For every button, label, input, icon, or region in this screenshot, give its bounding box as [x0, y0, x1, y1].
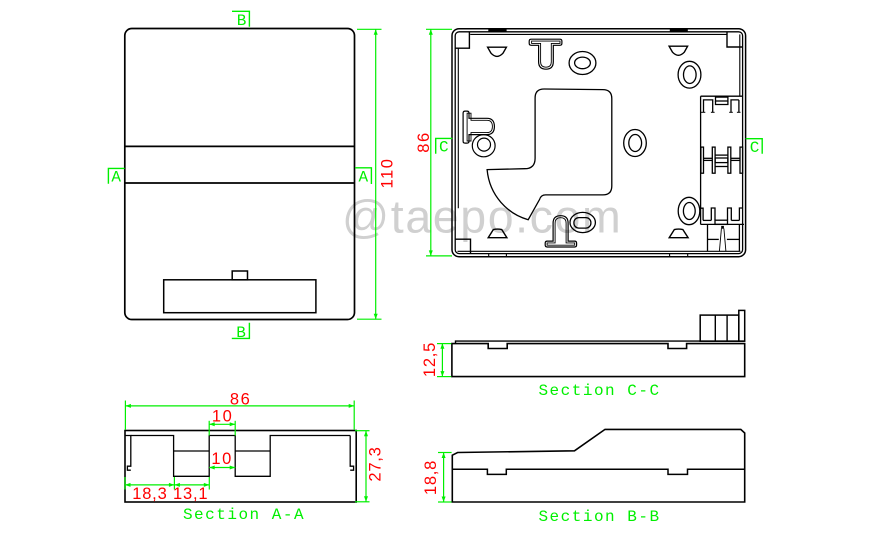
svg-text:C: C — [750, 139, 760, 157]
svg-text:C: C — [439, 139, 449, 157]
svg-text:Section A-A: Section A-A — [183, 506, 305, 524]
svg-text:13,1: 13,1 — [173, 485, 208, 503]
svg-text:10: 10 — [212, 407, 234, 425]
svg-text:27,3: 27,3 — [367, 446, 385, 481]
svg-text:Section B-B: Section B-B — [538, 508, 660, 526]
svg-text:A: A — [111, 168, 121, 186]
svg-text:@taepo.com: @taepo.com — [342, 191, 622, 243]
svg-text:18,8: 18,8 — [422, 460, 440, 495]
svg-text:12,5: 12,5 — [421, 342, 439, 377]
svg-text:18,3: 18,3 — [132, 485, 167, 503]
svg-text:110: 110 — [379, 157, 397, 188]
svg-text:A: A — [358, 169, 368, 187]
svg-text:B: B — [237, 12, 247, 30]
svg-text:86: 86 — [230, 391, 252, 409]
svg-text:B: B — [236, 324, 246, 342]
svg-text:10: 10 — [211, 450, 233, 468]
svg-text:86: 86 — [415, 131, 433, 153]
svg-text:Section C-C: Section C-C — [538, 382, 660, 400]
